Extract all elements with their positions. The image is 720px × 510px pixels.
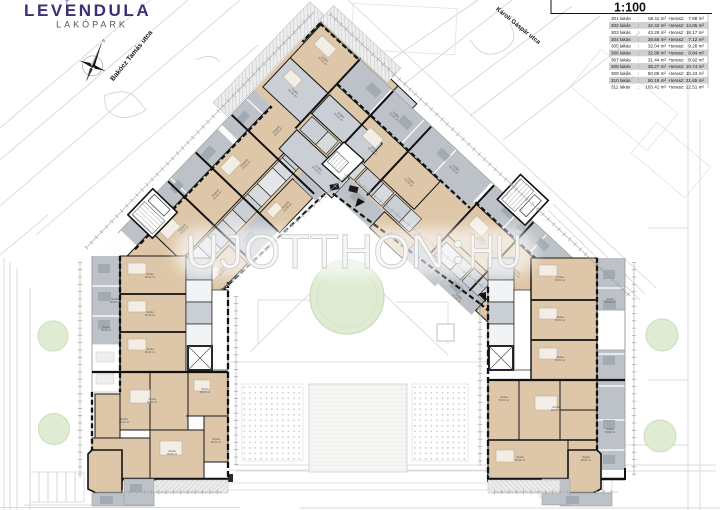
svg-text::: : <box>638 23 639 28</box>
svg-text:14.05 m²: 14.05 m² <box>686 23 705 28</box>
svg-text:00.00 m²: 00.00 m² <box>581 458 591 462</box>
svg-text:8.92 m²: 8.92 m² <box>688 57 704 62</box>
svg-text:+terasz:: +terasz: <box>668 78 684 83</box>
svg-text:303 lakás: 303 lakás <box>611 30 631 35</box>
svg-text::: : <box>638 78 639 83</box>
svg-text:HU: HU <box>468 226 522 279</box>
svg-text:50.86 m²: 50.86 m² <box>648 71 667 76</box>
svg-text:22.51 m²: 22.51 m² <box>686 85 705 90</box>
svg-text::: : <box>638 85 639 90</box>
svg-text:50.19 m²: 50.19 m² <box>648 78 667 83</box>
svg-text:00.00 m²: 00.00 m² <box>145 275 155 279</box>
svg-text:32.04 m²: 32.04 m² <box>648 44 667 49</box>
svg-text:307 lakás: 307 lakás <box>611 57 631 62</box>
svg-text:+terasz:: +terasz: <box>668 44 684 49</box>
svg-text:00.00 m²: 00.00 m² <box>555 358 565 362</box>
svg-text:18.17 m²: 18.17 m² <box>686 30 705 35</box>
svg-text:00.00 m²: 00.00 m² <box>200 390 210 394</box>
svg-text:00.00 m²: 00.00 m² <box>515 458 525 462</box>
svg-text:00.00 m²: 00.00 m² <box>499 398 509 402</box>
svg-text:8.84 m²: 8.84 m² <box>688 51 704 56</box>
svg-text:103.41 m²: 103.41 m² <box>645 85 666 90</box>
svg-text:00.00 m²: 00.00 m² <box>145 313 155 317</box>
svg-text:+terasz:: +terasz: <box>668 37 684 42</box>
svg-text:+terasz:: +terasz: <box>668 23 684 28</box>
svg-text:+terasz:: +terasz: <box>668 85 684 90</box>
svg-text::: : <box>638 16 639 21</box>
svg-text:31.44 m²: 31.44 m² <box>648 57 667 62</box>
svg-text:38.56 m²: 38.56 m² <box>648 37 667 42</box>
svg-text:00.00 m²: 00.00 m² <box>119 420 129 424</box>
svg-text::: : <box>638 57 639 62</box>
svg-text:10.43 m²: 10.43 m² <box>686 71 705 76</box>
svg-text:304 lakás: 304 lakás <box>611 37 631 42</box>
svg-text:+terasz:: +terasz: <box>668 51 684 56</box>
svg-text:42.42 m²: 42.42 m² <box>648 23 667 28</box>
svg-text:00.00 m²: 00.00 m² <box>110 300 120 304</box>
svg-text:00.00 m²: 00.00 m² <box>551 408 561 412</box>
svg-text:00.00 m²: 00.00 m² <box>555 318 565 322</box>
svg-text:7.12 m²: 7.12 m² <box>688 37 704 42</box>
svg-text:00.00 m²: 00.00 m² <box>145 350 155 354</box>
svg-text:305 lakás: 305 lakás <box>611 44 631 49</box>
svg-text:+terasz:: +terasz: <box>668 30 684 35</box>
svg-text:+terasz:: +terasz: <box>668 57 684 62</box>
svg-text:1:100: 1:100 <box>614 1 646 15</box>
svg-text:32.88 m²: 32.88 m² <box>648 51 667 56</box>
svg-text:9.28 m²: 9.28 m² <box>688 44 704 49</box>
svg-text::: : <box>638 51 639 56</box>
svg-text:38.27 m²: 38.27 m² <box>648 64 667 69</box>
svg-text:311 lakás: 311 lakás <box>611 85 631 90</box>
svg-text:00.00 m²: 00.00 m² <box>605 430 615 434</box>
svg-text::: : <box>638 44 639 49</box>
svg-text:00.00 m²: 00.00 m² <box>605 300 615 304</box>
svg-text:310 lakás: 310 lakás <box>611 78 631 83</box>
svg-text::: : <box>638 37 639 42</box>
svg-text:309 lakás: 309 lakás <box>611 71 631 76</box>
svg-text:00.00 m²: 00.00 m² <box>147 400 157 404</box>
svg-text:UJOTTHON: UJOTTHON <box>185 226 445 279</box>
svg-text:43.26 m²: 43.26 m² <box>648 30 667 35</box>
svg-text:LEVENDULA: LEVENDULA <box>24 1 151 20</box>
svg-text:+terasz:: +terasz: <box>668 64 684 69</box>
svg-text:306 lakás: 306 lakás <box>611 51 631 56</box>
svg-text:00.00 m²: 00.00 m² <box>167 452 177 456</box>
svg-text:56.11 m²: 56.11 m² <box>648 16 666 21</box>
svg-text:LAKÓPARK: LAKÓPARK <box>56 20 128 30</box>
svg-text:7.88 m²: 7.88 m² <box>688 16 704 21</box>
svg-text:00.00 m²: 00.00 m² <box>101 328 111 332</box>
svg-text:301 lakás: 301 lakás <box>611 16 631 21</box>
svg-text:308 lakás: 308 lakás <box>611 64 631 69</box>
svg-text:00.00 m²: 00.00 m² <box>555 278 565 282</box>
svg-text::: : <box>638 71 639 76</box>
svg-text:+terasz:: +terasz: <box>668 16 684 21</box>
svg-text:+terasz:: +terasz: <box>668 71 684 76</box>
svg-text:10.74 m²: 10.74 m² <box>686 64 705 69</box>
svg-text::: : <box>638 64 639 69</box>
svg-text:21.65 m²: 21.65 m² <box>686 78 705 83</box>
svg-text:302 lakás: 302 lakás <box>611 23 631 28</box>
svg-text:00.00 m²: 00.00 m² <box>211 440 221 444</box>
svg-text::: : <box>638 30 639 35</box>
